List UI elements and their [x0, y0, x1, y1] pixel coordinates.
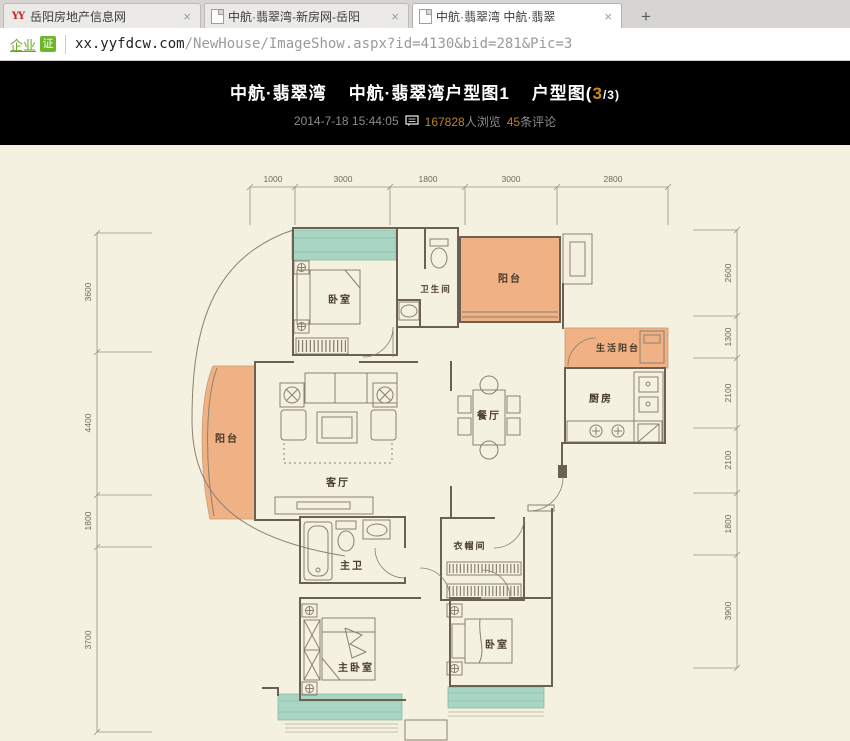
room-label-master-bedroom: 主卧室 — [338, 661, 374, 674]
page-title: 中航·翡翠湾中航·翡翠湾户型图1户型图(3/3) — [0, 79, 850, 104]
room-label-bedroom-tl: 卧室 — [328, 293, 352, 306]
room-label-living: 客厅 — [325, 476, 350, 489]
close-icon[interactable]: × — [388, 9, 402, 24]
project-name: 中航·翡翠湾 — [230, 84, 327, 103]
dim-left-3: 1800 — [83, 511, 93, 530]
address-separator — [65, 35, 66, 54]
dimensions-right: 2600 1300 2100 2100 1800 3900 — [693, 227, 740, 671]
comment-icon — [405, 115, 419, 127]
floorplan-page: 卧室 卫生间 阳台 生活阳台 厨房 餐厅 客厅 阳台 主卫 衣帽间 主卧室 卧室… — [0, 145, 850, 741]
room-label-kitchen: 厨房 — [589, 392, 613, 405]
image-title: 中航·翡翠湾户型图1 — [349, 84, 510, 103]
tab-title: 岳阳房地产信息网 — [30, 8, 176, 25]
room-label-closet: 衣帽间 — [453, 540, 486, 551]
dim-right-1: 2600 — [723, 263, 733, 282]
room-label-balcony-top: 阳台 — [498, 272, 522, 285]
publish-date: 2014-7-18 15:44:05 — [294, 114, 399, 128]
dimensions-left: 3600 4400 1800 3700 — [83, 230, 152, 735]
room-label-bathroom: 卫生间 — [420, 284, 452, 294]
dim-top-3: 1800 — [419, 174, 438, 184]
close-icon[interactable]: × — [601, 9, 615, 24]
close-icon[interactable]: × — [180, 9, 194, 24]
url-path: /NewHouse/ImageShow.aspx?id=4130&bid=281… — [185, 36, 573, 52]
image-counter-current: 3 — [592, 84, 602, 103]
new-tab-button[interactable]: + — [631, 6, 661, 28]
page-icon — [211, 9, 224, 24]
dim-top-4: 3000 — [502, 174, 521, 184]
comment-count: 45条评论 — [507, 113, 556, 130]
tab-title: 中航·翡翠湾 中航·翡翠 — [436, 8, 597, 25]
room-label-master-bath: 主卫 — [340, 559, 364, 572]
enterprise-cert-link[interactable]: 企业 — [10, 35, 36, 54]
image-counter-prefix: 户型图( — [532, 84, 593, 103]
floorplan-drawing: 卧室 卫生间 阳台 生活阳台 厨房 餐厅 客厅 阳台 主卫 衣帽间 主卧室 卧室… — [0, 145, 850, 741]
tab-floorplan-active[interactable]: 中航·翡翠湾 中航·翡翠 × — [412, 3, 622, 28]
tab-yueyang-site[interactable]: YY 岳阳房地产信息网 × — [3, 3, 201, 28]
page-meta: 2014-7-18 15:44:05 167828人浏览 45条评论 — [0, 113, 850, 130]
dim-right-4: 2100 — [723, 450, 733, 469]
dim-right-6: 3900 — [723, 601, 733, 620]
url-text[interactable]: xx.yyfdcw.com/NewHouse/ImageShow.aspx?id… — [75, 36, 572, 52]
url-host: xx.yyfdcw.com — [75, 36, 185, 52]
dim-top-5: 2800 — [604, 174, 623, 184]
browser-window: YY 岳阳房地产信息网 × 中航·翡翠湾-新房网-岳阳 × 中航·翡翠湾 中航·… — [0, 0, 850, 741]
dim-left-2: 4400 — [83, 413, 93, 432]
dim-right-5: 1800 — [723, 514, 733, 533]
balcony-fills — [202, 237, 668, 519]
walls — [255, 228, 665, 700]
dim-left-1: 3600 — [83, 282, 93, 301]
address-bar[interactable]: 企业 证 xx.yyfdcw.com/NewHouse/ImageShow.as… — [0, 28, 850, 61]
site-logo-icon: YY — [10, 8, 26, 24]
dim-top-2: 3000 — [334, 174, 353, 184]
page-icon — [419, 9, 432, 24]
room-label-life-balcony: 生活阳台 — [596, 342, 640, 353]
page-header: 中航·翡翠湾中航·翡翠湾户型图1户型图(3/3) 2014-7-18 15:44… — [0, 61, 850, 145]
tab-title: 中航·翡翠湾-新房网-岳阳 — [228, 8, 384, 25]
dim-left-4: 3700 — [83, 630, 93, 649]
room-label-bedroom-br: 卧室 — [485, 638, 509, 651]
dimensions-top: 1000 3000 1800 3000 2800 — [247, 174, 671, 225]
dim-top-1: 1000 — [264, 174, 283, 184]
room-label-balcony-left: 阳台 — [215, 432, 239, 445]
tab-strip: YY 岳阳房地产信息网 × 中航·翡翠湾-新房网-岳阳 × 中航·翡翠湾 中航·… — [0, 0, 850, 28]
dim-right-2: 1300 — [723, 327, 733, 346]
room-label-dining: 餐厅 — [476, 409, 501, 422]
tab-newhouse[interactable]: 中航·翡翠湾-新房网-岳阳 × — [204, 3, 409, 28]
image-counter-total: /3) — [603, 88, 620, 102]
cert-badge: 证 — [40, 36, 56, 52]
dim-right-3: 2100 — [723, 383, 733, 402]
view-count: 167828人浏览 — [425, 113, 501, 130]
